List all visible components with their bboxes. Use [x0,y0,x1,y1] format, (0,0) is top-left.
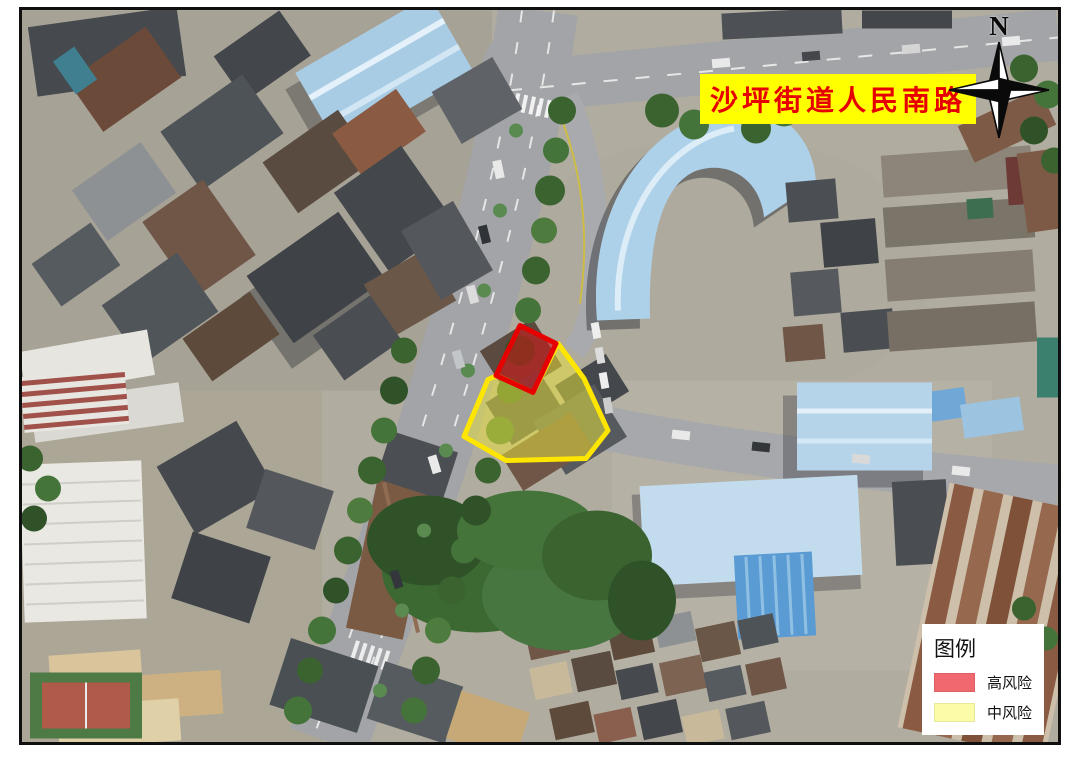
medium-risk-label: 中风险 [987,702,1032,723]
legend-item-high-risk: 高风险 [934,672,1032,693]
compass-star-icon [947,40,1051,140]
high-risk-swatch [934,673,975,692]
compass-n-label: N [944,12,1054,40]
map-title: 沙坪街道人民南路 [700,74,976,124]
legend-title: 图例 [934,633,1032,663]
compass-rose: N [944,12,1054,140]
legend-panel: 图例 高风险 中风险 [922,624,1044,735]
map-frame: 沙坪街道人民南路 N 图例 高风险 中风险 [19,7,1061,745]
medium-risk-swatch [934,703,975,722]
legend-item-medium-risk: 中风险 [934,702,1032,723]
high-risk-label: 高风险 [987,672,1032,693]
